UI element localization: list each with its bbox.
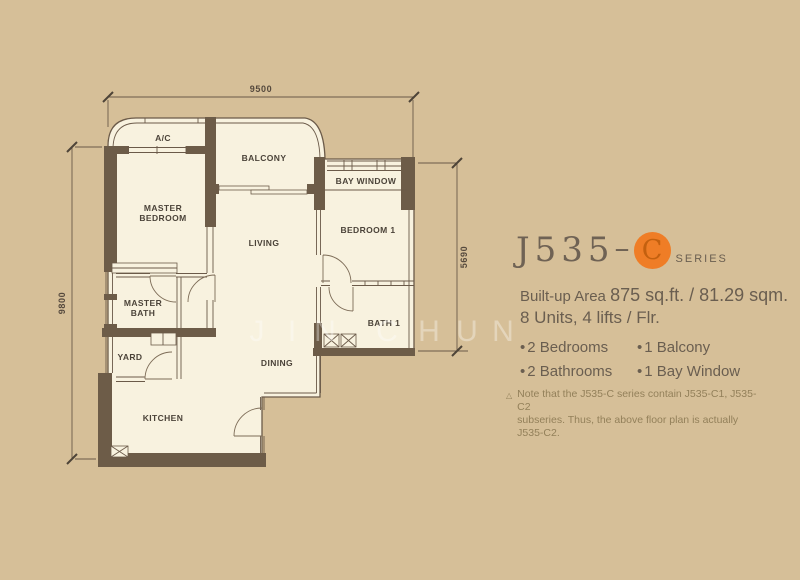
bullet-icon: • <box>637 339 642 356</box>
footnote-text: Note that the J535-C series contain J535… <box>517 388 766 440</box>
dimension-top-label: 9500 <box>250 84 272 94</box>
series-letter: C <box>642 237 663 264</box>
title-text: J535 <box>516 230 615 270</box>
footnote: △ Note that the J535-C series contain J5… <box>506 388 766 440</box>
room-label-master-bedroom-1: MASTER <box>144 203 182 213</box>
room-label-master-bath-2: BATH <box>131 308 156 318</box>
builtup-prefix: Built-up Area <box>520 288 606 305</box>
feature-bedrooms: •2 Bedrooms <box>520 339 637 356</box>
dimension-right-label: 5690 <box>459 246 469 268</box>
room-label-ac: A/C <box>155 133 171 143</box>
builtup-value: 875 sq.ft. / 81.29 sqm. <box>610 285 788 305</box>
bullet-icon: • <box>637 363 642 380</box>
info-panel: J535 – C SERIES Built-up Area 875 sq.ft.… <box>506 228 794 428</box>
room-label-kitchen: KITCHEN <box>143 413 184 423</box>
feature-list: •2 Bedrooms •1 Balcony •2 Bathrooms •1 B… <box>520 339 740 380</box>
room-label-dining: DINING <box>261 358 293 368</box>
feature-balcony: •1 Balcony <box>637 339 740 356</box>
builtup-area-line: Built-up Area 875 sq.ft. / 81.29 sqm. <box>520 285 788 306</box>
room-label-master-bath-1: MASTER <box>124 298 162 308</box>
dimension-left: 9800 <box>57 142 102 464</box>
room-label-yard: YARD <box>118 352 143 362</box>
feature-bay-window: •1 Bay Window <box>637 363 740 380</box>
watermark-letter: N <box>314 315 336 348</box>
room-label-living: LIVING <box>249 238 280 248</box>
dimension-left-label: 9800 <box>57 292 67 314</box>
title-dash: – <box>615 231 630 266</box>
room-label-balcony: BALCONY <box>242 153 287 163</box>
footnote-line2: subseries. Thus, the above floor plan is… <box>517 414 738 439</box>
watermark-letter: H <box>418 315 440 348</box>
room-label-bedroom1: BEDROOM 1 <box>340 225 395 235</box>
watermark-letter: U <box>456 315 478 348</box>
series-label: SERIES <box>676 253 728 265</box>
feature-bathrooms: •2 Bathrooms <box>520 363 637 380</box>
series-title: J535 – C SERIES <box>516 230 728 270</box>
watermark-letter: J <box>250 315 265 348</box>
watermark-letter: C <box>376 315 398 348</box>
units-line: 8 Units, 4 lifts / Flr. <box>520 308 660 328</box>
room-label-master-bedroom-2: BEDROOM <box>139 213 186 223</box>
floor-plan: A/C BALCONY BAY WINDOW MASTER BEDROOM LI… <box>57 84 514 467</box>
series-badge-circle: C <box>634 232 671 269</box>
triangle-icon: △ <box>506 388 512 440</box>
bullet-icon: • <box>520 363 525 380</box>
watermark: J I N C H U N <box>250 315 514 348</box>
bullet-icon: • <box>520 339 525 356</box>
room-label-bay-window: BAY WINDOW <box>336 176 397 186</box>
footnote-line1: Note that the J535-C series contain J535… <box>517 388 756 413</box>
watermark-letter: I <box>288 315 296 348</box>
